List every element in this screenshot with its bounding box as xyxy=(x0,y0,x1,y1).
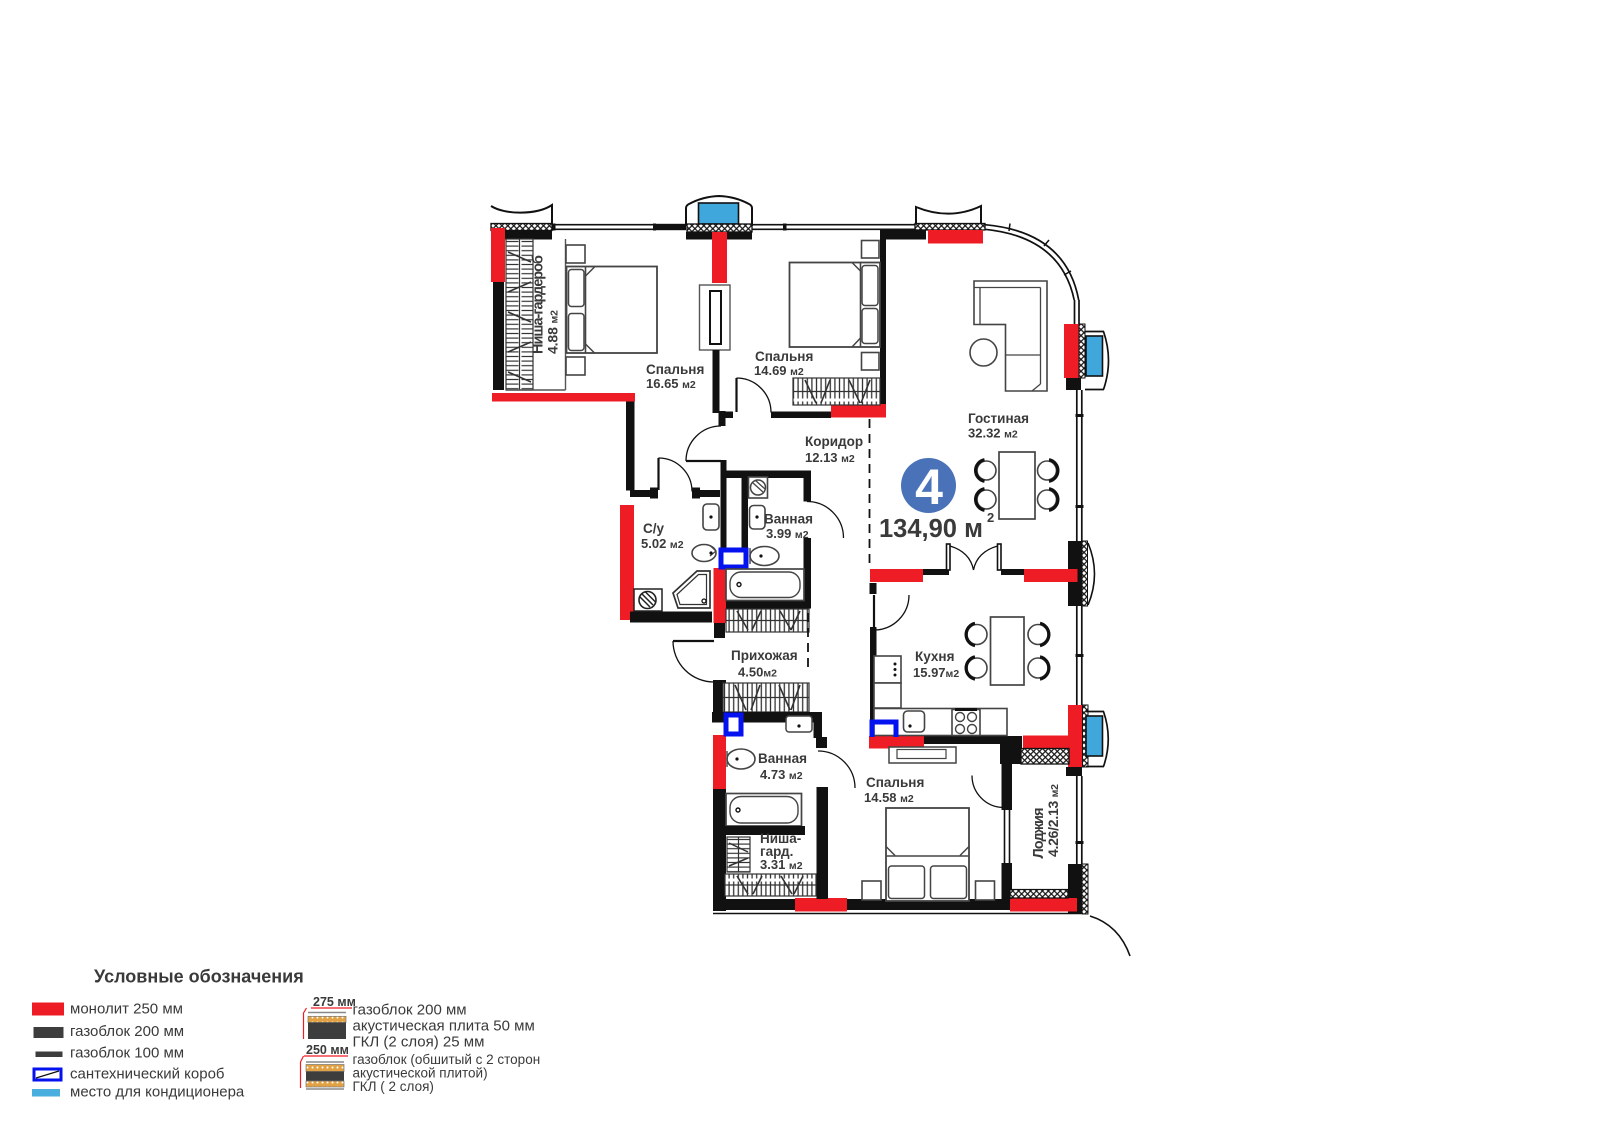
svg-text:монолит 250 мм: монолит 250 мм xyxy=(70,1001,183,1018)
svg-text:Гостиная: Гостиная xyxy=(968,411,1029,426)
svg-text:Прихожая: Прихожая xyxy=(731,648,798,663)
svg-text:5.02 м2: 5.02 м2 xyxy=(641,536,684,551)
svg-text:ГКЛ ( 2 слоя): ГКЛ ( 2 слоя) xyxy=(353,1079,434,1094)
svg-text:14.69 м2: 14.69 м2 xyxy=(754,363,804,378)
svg-text:Кухня: Кухня xyxy=(915,649,954,664)
svg-text:Спальня: Спальня xyxy=(866,775,924,790)
svg-text:4.73 м2: 4.73 м2 xyxy=(760,767,803,782)
svg-text:32.32 м2: 32.32 м2 xyxy=(968,426,1018,441)
svg-text:акустическая плита 50 мм: акустическая плита 50 мм xyxy=(353,1018,535,1035)
svg-text:14.58 м2: 14.58 м2 xyxy=(864,790,914,805)
svg-text:газоблок 200 мм: газоблок 200 мм xyxy=(70,1023,184,1040)
svg-text:Ванная: Ванная xyxy=(758,751,807,766)
svg-text:сантехнический короб: сантехнический короб xyxy=(70,1066,225,1083)
svg-text:Спальня: Спальня xyxy=(646,362,704,377)
svg-text:275 мм: 275 мм xyxy=(313,995,356,1009)
svg-text:газоблок 200 мм: газоблок 200 мм xyxy=(353,1002,467,1019)
svg-text:4: 4 xyxy=(915,459,943,515)
svg-text:Коридор: Коридор xyxy=(805,434,863,449)
svg-text:134,90 м: 134,90 м xyxy=(879,515,983,543)
svg-text:Условные обозначения: Условные обозначения xyxy=(94,967,304,987)
svg-text:3.31 м2: 3.31 м2 xyxy=(760,857,803,872)
svg-text:Ванная: Ванная xyxy=(764,512,813,527)
svg-text:С/у: С/у xyxy=(643,521,665,536)
svg-text:250 мм: 250 мм xyxy=(306,1043,349,1057)
svg-text:4.50м2: 4.50м2 xyxy=(738,665,777,680)
svg-text:ГКЛ (2 слоя) 25 мм: ГКЛ (2 слоя) 25 мм xyxy=(353,1034,485,1051)
svg-text:15.97м2: 15.97м2 xyxy=(913,665,959,680)
svg-text:3.99 м2: 3.99 м2 xyxy=(766,526,809,541)
svg-text:16.65 м2: 16.65 м2 xyxy=(646,376,696,391)
svg-text:2: 2 xyxy=(987,510,994,525)
svg-text:место для кондиционера: место для кондиционера xyxy=(70,1084,245,1101)
svg-text:газоблок 100 мм: газоблок 100 мм xyxy=(70,1045,184,1062)
svg-text:Спальня: Спальня xyxy=(755,349,813,364)
svg-text:12.13 м2: 12.13 м2 xyxy=(805,450,855,465)
